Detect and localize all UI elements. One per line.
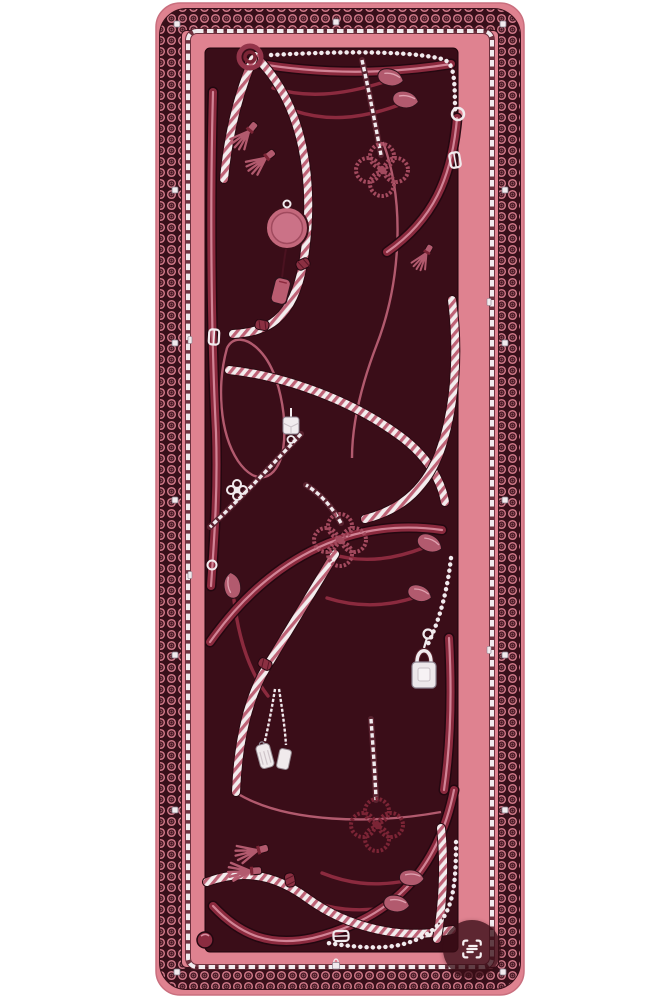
scarf-image: Rectangular burgundy and rose-pink silk … <box>155 2 525 996</box>
scarf-alt-text: Rectangular burgundy and rose-pink silk … <box>155 996 156 997</box>
scarf-artwork <box>155 2 525 996</box>
product-image-viewer: Rectangular burgundy and rose-pink silk … <box>0 0 667 1000</box>
rope-knob <box>197 932 213 948</box>
scan-text-icon <box>458 935 486 963</box>
visual-search-button[interactable] <box>443 920 501 978</box>
